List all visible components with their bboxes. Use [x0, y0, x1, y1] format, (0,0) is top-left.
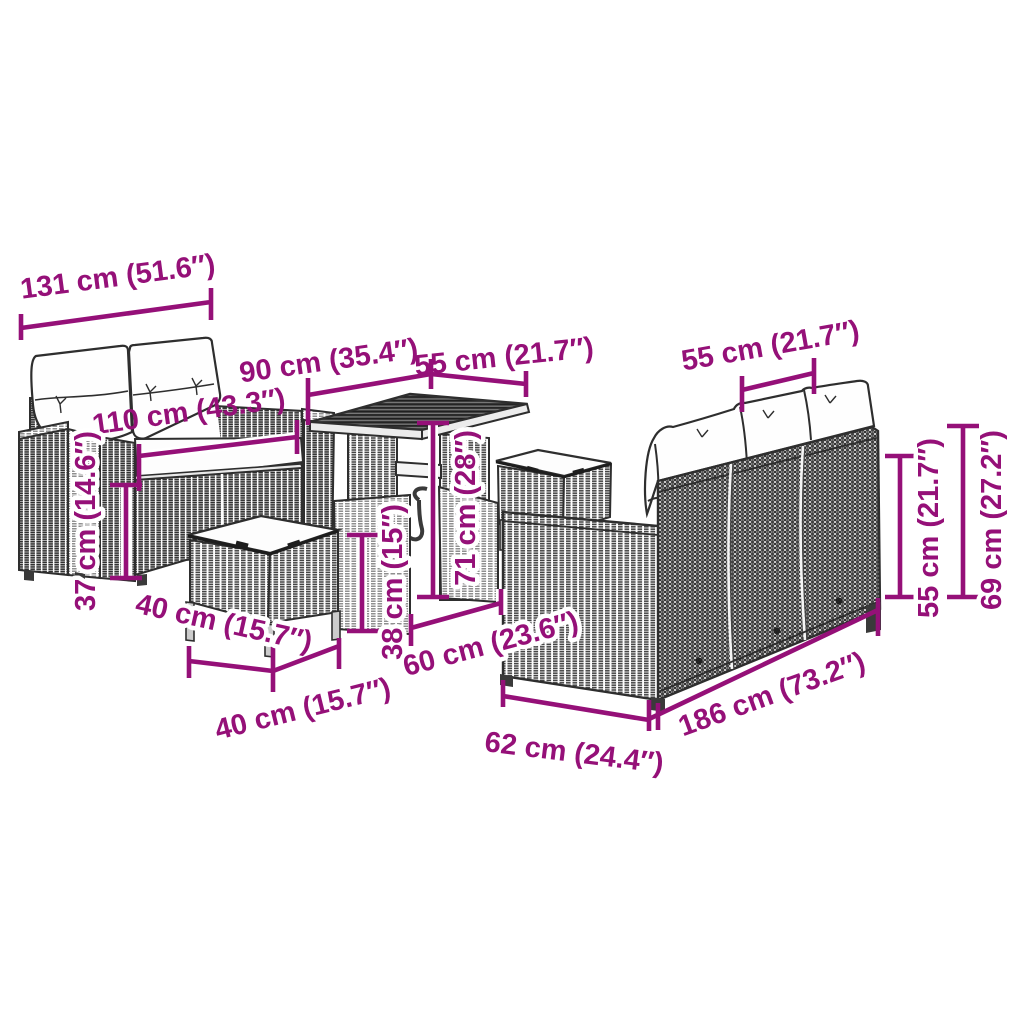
svg-text:69 cm (27.2″): 69 cm (27.2″) [976, 430, 1008, 610]
svg-text:55 cm (21.7″): 55 cm (21.7″) [913, 438, 945, 618]
svg-text:71 cm (28″): 71 cm (28″) [450, 430, 482, 586]
svg-text:38 cm (15″): 38 cm (15″) [377, 504, 409, 660]
svg-text:37 cm (14.6″): 37 cm (14.6″) [70, 431, 102, 611]
